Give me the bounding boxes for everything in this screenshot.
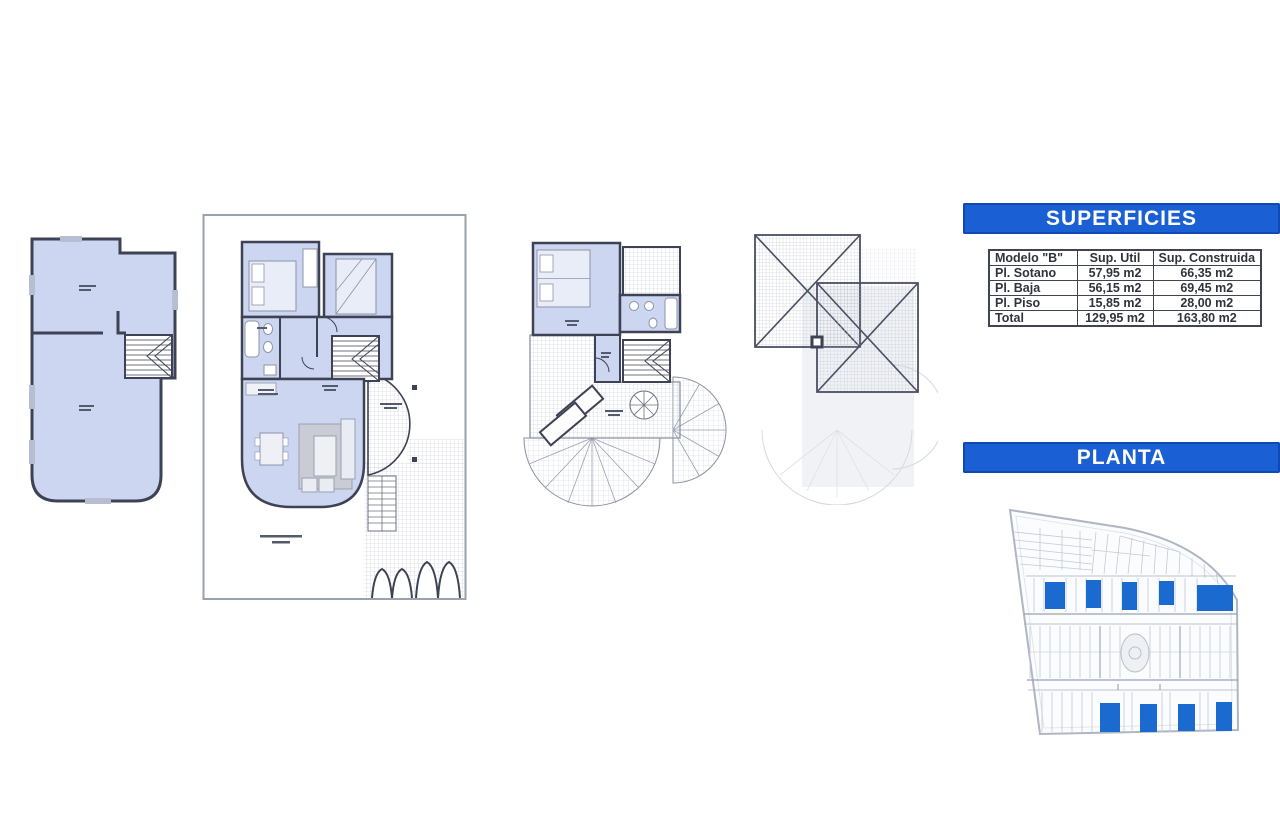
- row-label: Pl. Sotano: [989, 266, 1077, 281]
- planta-title: PLANTA: [1077, 446, 1167, 470]
- piso-hall: [595, 335, 620, 382]
- planta-banner: PLANTA: [963, 442, 1280, 473]
- superficies-banner: SUPERFICIES: [963, 203, 1280, 234]
- baja-stairs: [332, 336, 379, 381]
- table-row: Pl. Sotano 57,95 m2 66,35 m2: [989, 266, 1261, 281]
- sup-construida-value: 66,35 m2: [1153, 266, 1261, 281]
- sup-construida-value: 28,00 m2: [1153, 296, 1261, 311]
- row-label: Pl. Piso: [989, 296, 1077, 311]
- baja-exterior-stair: [368, 476, 396, 531]
- sup-construida-value: 69,45 m2: [1153, 281, 1261, 296]
- table-row: Pl. Piso 15,85 m2 28,00 m2: [989, 296, 1261, 311]
- row-label: Pl. Baja: [989, 281, 1077, 296]
- piso-stairs: [623, 340, 670, 382]
- baja-bedroom-2: [324, 254, 392, 317]
- table-row: Pl. Baja 56,15 m2 69,45 m2: [989, 281, 1261, 296]
- floorplan-piso: [513, 240, 728, 525]
- site-plan: [1000, 498, 1280, 748]
- plan-sheet: SUPERFICIES Modelo "B" Sup. Util Sup. Co…: [0, 0, 1280, 824]
- hip-roof-2: [817, 283, 918, 392]
- floorplan-baja: [202, 207, 468, 601]
- piso-bathroom: [620, 295, 680, 332]
- sup-util-value: 15,85 m2: [1077, 296, 1153, 311]
- table-total-row: Total 129,95 m2 163,80 m2: [989, 311, 1261, 327]
- piso-roof-porch-hatch: [623, 247, 680, 295]
- baja-living-room: [242, 379, 364, 507]
- piso-right-fan-terrace: [673, 377, 726, 483]
- table-header-row: Modelo "B" Sup. Util Sup. Construida: [989, 250, 1261, 266]
- sup-util-value: 129,95 m2: [1077, 311, 1153, 327]
- col-header-sup-util: Sup. Util: [1077, 250, 1153, 266]
- col-header-modelo: Modelo "B": [989, 250, 1077, 266]
- floorplan-sotano: [25, 235, 180, 515]
- sup-util-value: 56,15 m2: [1077, 281, 1153, 296]
- superficies-title: SUPERFICIES: [1046, 207, 1197, 231]
- superficies-table: Modelo "B" Sup. Util Sup. Construida Pl.…: [988, 249, 1262, 327]
- sotano-stairs: [125, 335, 172, 378]
- sup-util-value: 57,95 m2: [1077, 266, 1153, 281]
- col-header-sup-construida: Sup. Construida: [1153, 250, 1261, 266]
- piso-bottom-fan-terrace: [524, 438, 660, 506]
- baja-bedroom-1: [242, 242, 319, 317]
- chimney: [812, 337, 822, 347]
- sup-construida-value: 163,80 m2: [1153, 311, 1261, 327]
- roof-plan: [742, 225, 938, 505]
- piso-spiral-stair: [630, 391, 658, 419]
- site-center-emblem: [1121, 634, 1149, 672]
- row-label: Total: [989, 311, 1077, 327]
